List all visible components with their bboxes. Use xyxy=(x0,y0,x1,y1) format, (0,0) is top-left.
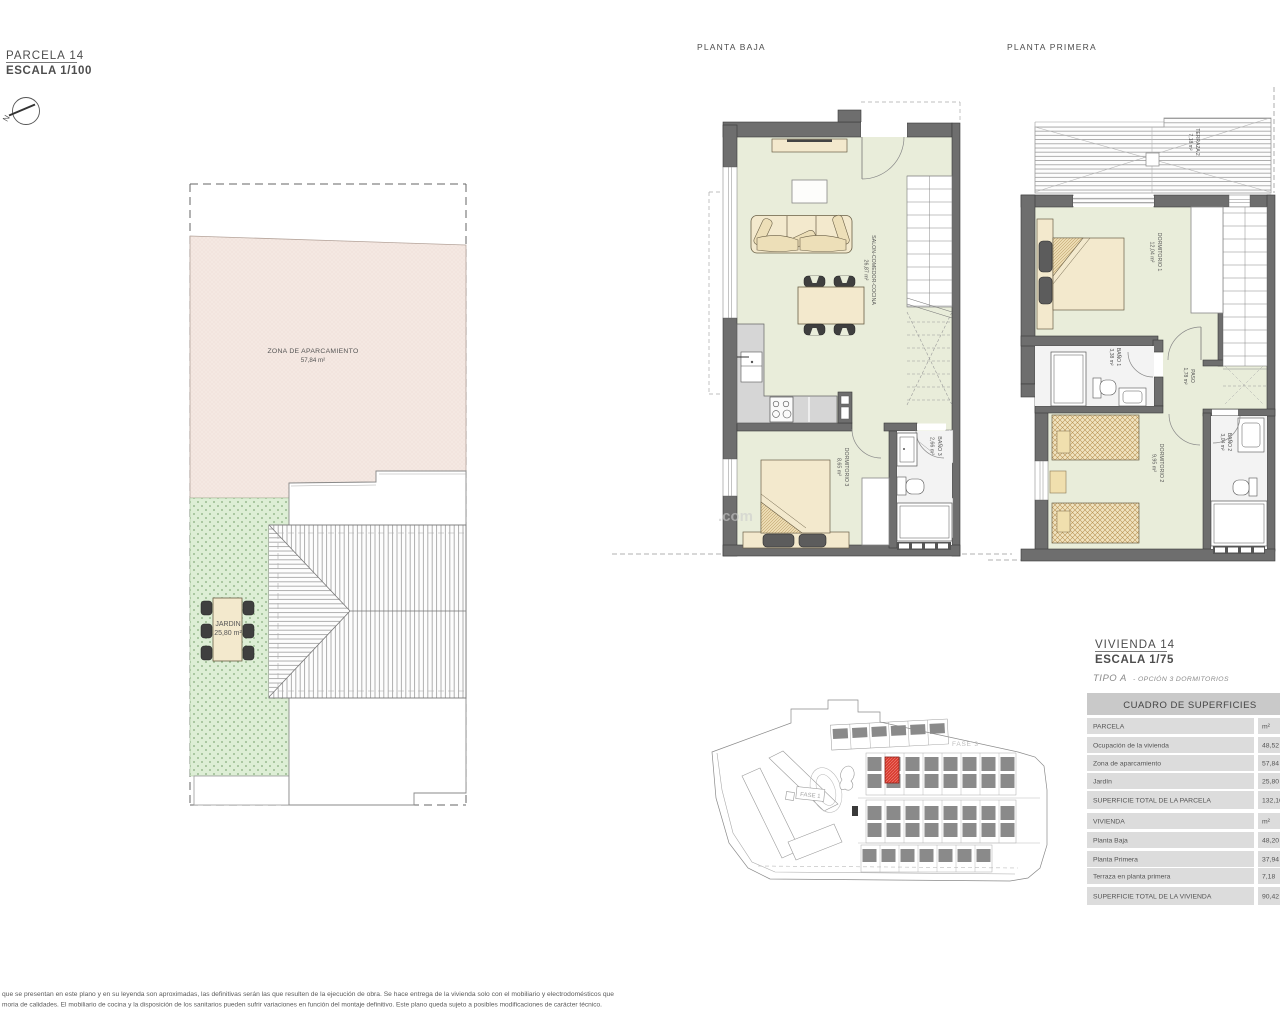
svg-text:37,94: 37,94 xyxy=(1262,857,1279,864)
svg-text:25,80: 25,80 xyxy=(1262,779,1279,786)
svg-text:Planta Primera: Planta Primera xyxy=(1093,857,1138,864)
svg-text:moria de calidades. El mobilia: moria de calidades. El mobiliario de coc… xyxy=(2,1003,602,1009)
svg-text:SALON-COMEDOR-COCINA: SALON-COMEDOR-COCINA xyxy=(870,235,876,305)
svg-text:3,38 m²: 3,38 m² xyxy=(1108,349,1114,366)
svg-text:JARDIN: JARDIN xyxy=(215,621,240,628)
svg-text:DORMITORIO 3: DORMITORIO 3 xyxy=(843,448,849,487)
svg-text:ESCALA 1/75: ESCALA 1/75 xyxy=(1095,654,1174,666)
svg-text:Ocupación de la vivienda: Ocupación de la vivienda xyxy=(1093,743,1169,750)
svg-text:TIPO A: TIPO A xyxy=(1093,673,1127,684)
svg-text:PLANTA PRIMERA: PLANTA PRIMERA xyxy=(1007,42,1097,52)
svg-text:90,42: 90,42 xyxy=(1262,894,1279,901)
svg-text:que se presentan en este plano: que se presentan en este plano y en su l… xyxy=(2,992,615,998)
svg-text:7,18: 7,18 xyxy=(1262,874,1275,881)
svg-text:SUPERFICIE TOTAL DE LA VIVIEND: SUPERFICIE TOTAL DE LA VIVIENDA xyxy=(1093,894,1212,901)
svg-text:132,16: 132,16 xyxy=(1262,798,1280,805)
svg-text:7,18 m²: 7,18 m² xyxy=(1187,134,1193,151)
svg-text:Planta Baja: Planta Baja xyxy=(1093,838,1128,845)
svg-text:DORMITORIO 2: DORMITORIO 2 xyxy=(1158,444,1164,483)
svg-text:ZONA DE APARCAMIENTO: ZONA DE APARCAMIENTO xyxy=(267,348,358,355)
svg-text:48,20: 48,20 xyxy=(1262,838,1279,845)
svg-text:m²: m² xyxy=(1262,819,1271,826)
svg-text:48,52: 48,52 xyxy=(1262,743,1279,750)
svg-text:DORMITORIO 1: DORMITORIO 1 xyxy=(1156,233,1162,272)
svg-text:Jardín: Jardín xyxy=(1093,779,1112,786)
svg-text:FASE 3: FASE 3 xyxy=(952,741,979,748)
svg-text:8,65 m²: 8,65 m² xyxy=(836,458,842,476)
svg-text:- OPCIÓN 3 DORMITORIOS: - OPCIÓN 3 DORMITORIOS xyxy=(1133,674,1229,683)
svg-text:9,95 m²: 9,95 m² xyxy=(1151,454,1157,472)
svg-text:BAÑO 3: BAÑO 3 xyxy=(936,436,943,455)
svg-text:1,78 m²: 1,78 m² xyxy=(1182,368,1188,385)
svg-text:26,87 m²: 26,87 m² xyxy=(863,260,869,281)
svg-text:2,66 m²: 2,66 m² xyxy=(929,437,935,455)
svg-text:ESCALA 1/100: ESCALA 1/100 xyxy=(6,65,92,77)
svg-text:PASO: PASO xyxy=(1189,369,1195,383)
svg-text:CUADRO DE SUPERFICIES: CUADRO DE SUPERFICIES xyxy=(1123,700,1257,711)
svg-text:PARCELA: PARCELA xyxy=(1093,724,1125,731)
svg-text:m²: m² xyxy=(1262,724,1271,731)
svg-text:SUPERFICIE TOTAL DE LA PARCELA: SUPERFICIE TOTAL DE LA PARCELA xyxy=(1093,798,1211,805)
svg-text:12,04 m²: 12,04 m² xyxy=(1149,242,1155,263)
svg-text:VIVIENDA: VIVIENDA xyxy=(1093,819,1125,826)
svg-text:PARCELA 14: PARCELA 14 xyxy=(6,50,84,62)
svg-text:VIVIENDA 14: VIVIENDA 14 xyxy=(1095,639,1175,651)
svg-text:PLANTA BAJA: PLANTA BAJA xyxy=(697,42,766,52)
svg-text:25,80 m²: 25,80 m² xyxy=(214,630,242,637)
svg-text:57,84 m²: 57,84 m² xyxy=(301,357,325,364)
svg-text:TERRAZA 2: TERRAZA 2 xyxy=(1194,128,1200,155)
svg-text:BAÑO 1: BAÑO 1 xyxy=(1115,348,1122,367)
svg-text:57,84: 57,84 xyxy=(1262,761,1279,768)
svg-text:.com: .com xyxy=(718,508,753,525)
svg-text:Zona de aparcamiento: Zona de aparcamiento xyxy=(1093,761,1161,768)
svg-text:Terraza en planta primera: Terraza en planta primera xyxy=(1093,874,1171,881)
